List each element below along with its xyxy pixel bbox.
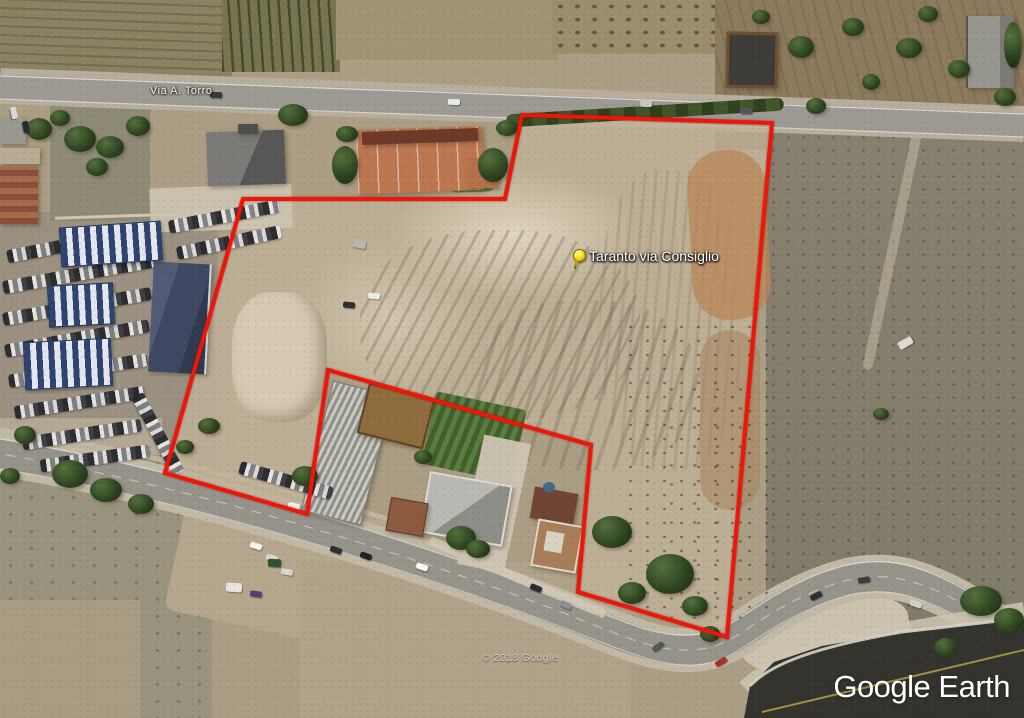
placemark-pin[interactable] <box>572 249 586 273</box>
road-name-label: Via A. Torro <box>150 85 212 97</box>
parcel-boundary <box>0 0 1024 718</box>
satellite-map[interactable]: Via A. Torro Taranto via Consiglio © 201… <box>0 0 1024 718</box>
placemark-label[interactable]: Taranto via Consiglio <box>589 248 719 264</box>
google-earth-logo: Google Earth <box>833 669 1010 705</box>
copyright-watermark: © 2018 Google <box>482 652 558 664</box>
